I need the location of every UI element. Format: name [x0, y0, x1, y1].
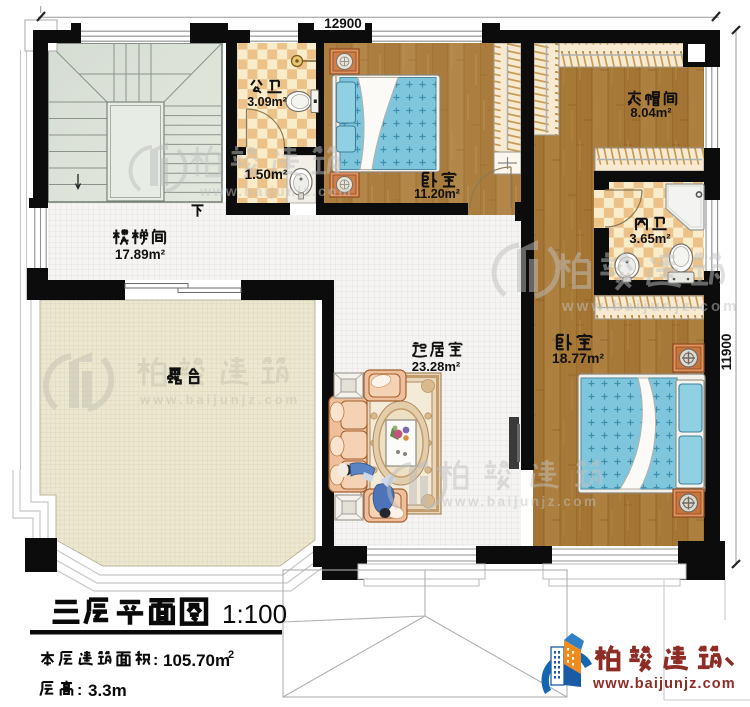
svg-text:www.baijunjz.com: www.baijunjz.com	[199, 183, 353, 199]
svg-text:3.3m: 3.3m	[88, 681, 127, 700]
svg-text:www.baijunjz.com: www.baijunjz.com	[561, 298, 739, 315]
svg-text:11900: 11900	[719, 334, 734, 371]
svg-text::: :	[77, 682, 82, 699]
svg-text:www.baijunjz.com: www.baijunjz.com	[139, 392, 300, 407]
svg-text:23.28m²: 23.28m²	[412, 359, 461, 374]
svg-text:www.baijunjz.com: www.baijunjz.com	[441, 494, 599, 509]
svg-text:1:100: 1:100	[222, 599, 287, 629]
svg-text:www.baijunjz.com: www.baijunjz.com	[592, 676, 736, 692]
svg-text:17.89m²: 17.89m²	[115, 247, 166, 262]
svg-text::: :	[153, 652, 158, 669]
svg-text:8.04m²: 8.04m²	[630, 105, 672, 120]
svg-text:105.70m: 105.70m	[163, 651, 230, 670]
svg-text:2: 2	[228, 649, 234, 661]
svg-text:11.20m²: 11.20m²	[414, 187, 460, 201]
svg-text:12900: 12900	[324, 16, 362, 31]
svg-text:1.50m²: 1.50m²	[245, 167, 288, 182]
svg-text:3.09m²: 3.09m²	[247, 95, 287, 109]
svg-text:3.65m²: 3.65m²	[629, 231, 671, 246]
svg-text:18.77m²: 18.77m²	[552, 350, 604, 366]
